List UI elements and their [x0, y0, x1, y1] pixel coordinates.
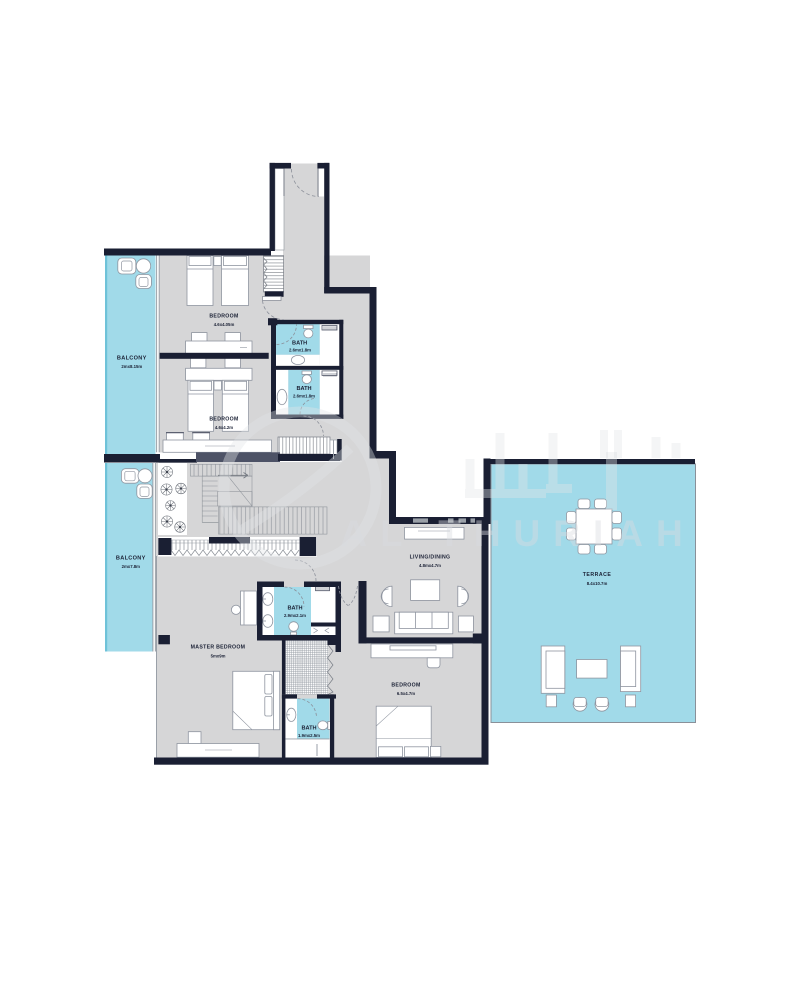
svg-text:4.6x4.2m: 4.6x4.2m: [215, 425, 233, 430]
svg-text:BATH: BATH: [287, 606, 302, 612]
svg-text:BEDROOM: BEDROOM: [209, 314, 238, 320]
svg-text:TERRACE: TERRACE: [583, 572, 612, 578]
svg-text:4.6x4.05m: 4.6x4.05m: [214, 322, 235, 327]
svg-text:BATH: BATH: [296, 386, 311, 392]
svg-text:4.8mx4.7m: 4.8mx4.7m: [419, 563, 441, 568]
svg-text:2.6mx1.8m: 2.6mx1.8m: [289, 348, 311, 353]
svg-text:BATH: BATH: [301, 726, 316, 732]
svg-text:2.6mx1.8m: 2.6mx1.8m: [293, 394, 315, 399]
svg-text:2.9mx2.1m: 2.9mx2.1m: [284, 613, 306, 618]
svg-text:BATH: BATH: [292, 341, 307, 347]
svg-text:2mx7.8m: 2mx7.8m: [122, 564, 141, 569]
svg-text:2mx8.15m: 2mx8.15m: [121, 364, 142, 369]
svg-text:6.5x4.7m: 6.5x4.7m: [397, 691, 415, 696]
svg-text:MASTER BEDROOM: MASTER BEDROOM: [191, 645, 246, 651]
svg-text:LIVING/DINING: LIVING/DINING: [410, 555, 451, 561]
svg-text:AL THURIAH: AL THURIAH: [340, 513, 695, 554]
svg-text:BEDROOM: BEDROOM: [391, 683, 420, 689]
svg-text:BALCONY: BALCONY: [116, 556, 146, 562]
svg-text:1.9mx2.5m: 1.9mx2.5m: [298, 733, 320, 738]
svg-text:BALCONY: BALCONY: [117, 356, 147, 362]
svg-text:8.4x10.7m: 8.4x10.7m: [587, 581, 608, 586]
svg-text:5mx9m: 5mx9m: [211, 654, 226, 659]
svg-text:BEDROOM: BEDROOM: [209, 417, 238, 423]
